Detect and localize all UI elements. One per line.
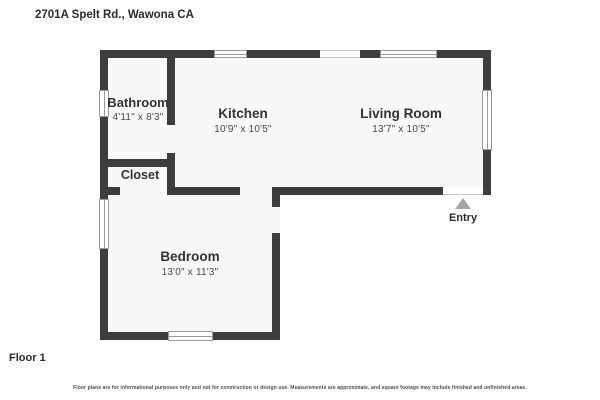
wall-bathroom-closet-divider [100, 159, 175, 167]
window-kitchen-top-icon [214, 50, 247, 58]
room-label-livingroom: Living Room 13'7" x 10'5" [360, 106, 442, 136]
entry-door-opening [443, 187, 483, 195]
room-name-closet: Closet [121, 168, 159, 184]
room-dim-livingroom: 13'7" x 10'5" [360, 123, 442, 136]
room-label-bathroom: Bathroom 4'11" x 8'3" [107, 95, 168, 124]
wall-livingroom-bottom [272, 187, 443, 195]
wall-bedroom-bottom-left [100, 332, 168, 340]
opening-top-wall [320, 50, 360, 58]
wall-closet-right [167, 167, 175, 195]
window-bedroom-bottom-icon [168, 331, 213, 341]
room-name-bedroom: Bedroom [160, 249, 219, 266]
room-dim-kitchen: 10'9" x 10'5" [214, 123, 271, 136]
room-dim-bathroom: 4'11" x 8'3" [107, 111, 168, 124]
room-label-closet: Closet [121, 168, 159, 184]
wall-bedroom-right [272, 233, 280, 340]
wall-bedroom-bottom-right [213, 332, 280, 340]
window-livingroom-right-icon [482, 90, 492, 150]
entry-label: Entry [449, 212, 477, 224]
room-name-kitchen: Kitchen [214, 106, 271, 123]
wall-kitchen-bottom [167, 187, 240, 195]
disclaimer-text: Floor plans are for informational purpos… [0, 385, 600, 391]
wall-closet-bottom-stub [108, 187, 120, 195]
entry-arrow-icon [455, 198, 471, 209]
room-dim-bedroom: 13'0" x 11'3" [160, 266, 219, 279]
room-label-kitchen: Kitchen 10'9" x 10'5" [214, 106, 271, 136]
room-name-bathroom: Bathroom [107, 95, 168, 111]
floorplan-canvas: Entry Bathroom 4'11" x 8'3" Kitchen 10'9… [0, 0, 600, 400]
room-label-bedroom: Bedroom 13'0" x 11'3" [160, 249, 219, 279]
floor-label: Floor 1 [9, 352, 46, 364]
window-livingroom-top-icon [380, 50, 437, 58]
wall-bedroom-right-stub [272, 187, 280, 207]
window-bedroom-left-icon [99, 199, 109, 249]
room-name-livingroom: Living Room [360, 106, 442, 123]
